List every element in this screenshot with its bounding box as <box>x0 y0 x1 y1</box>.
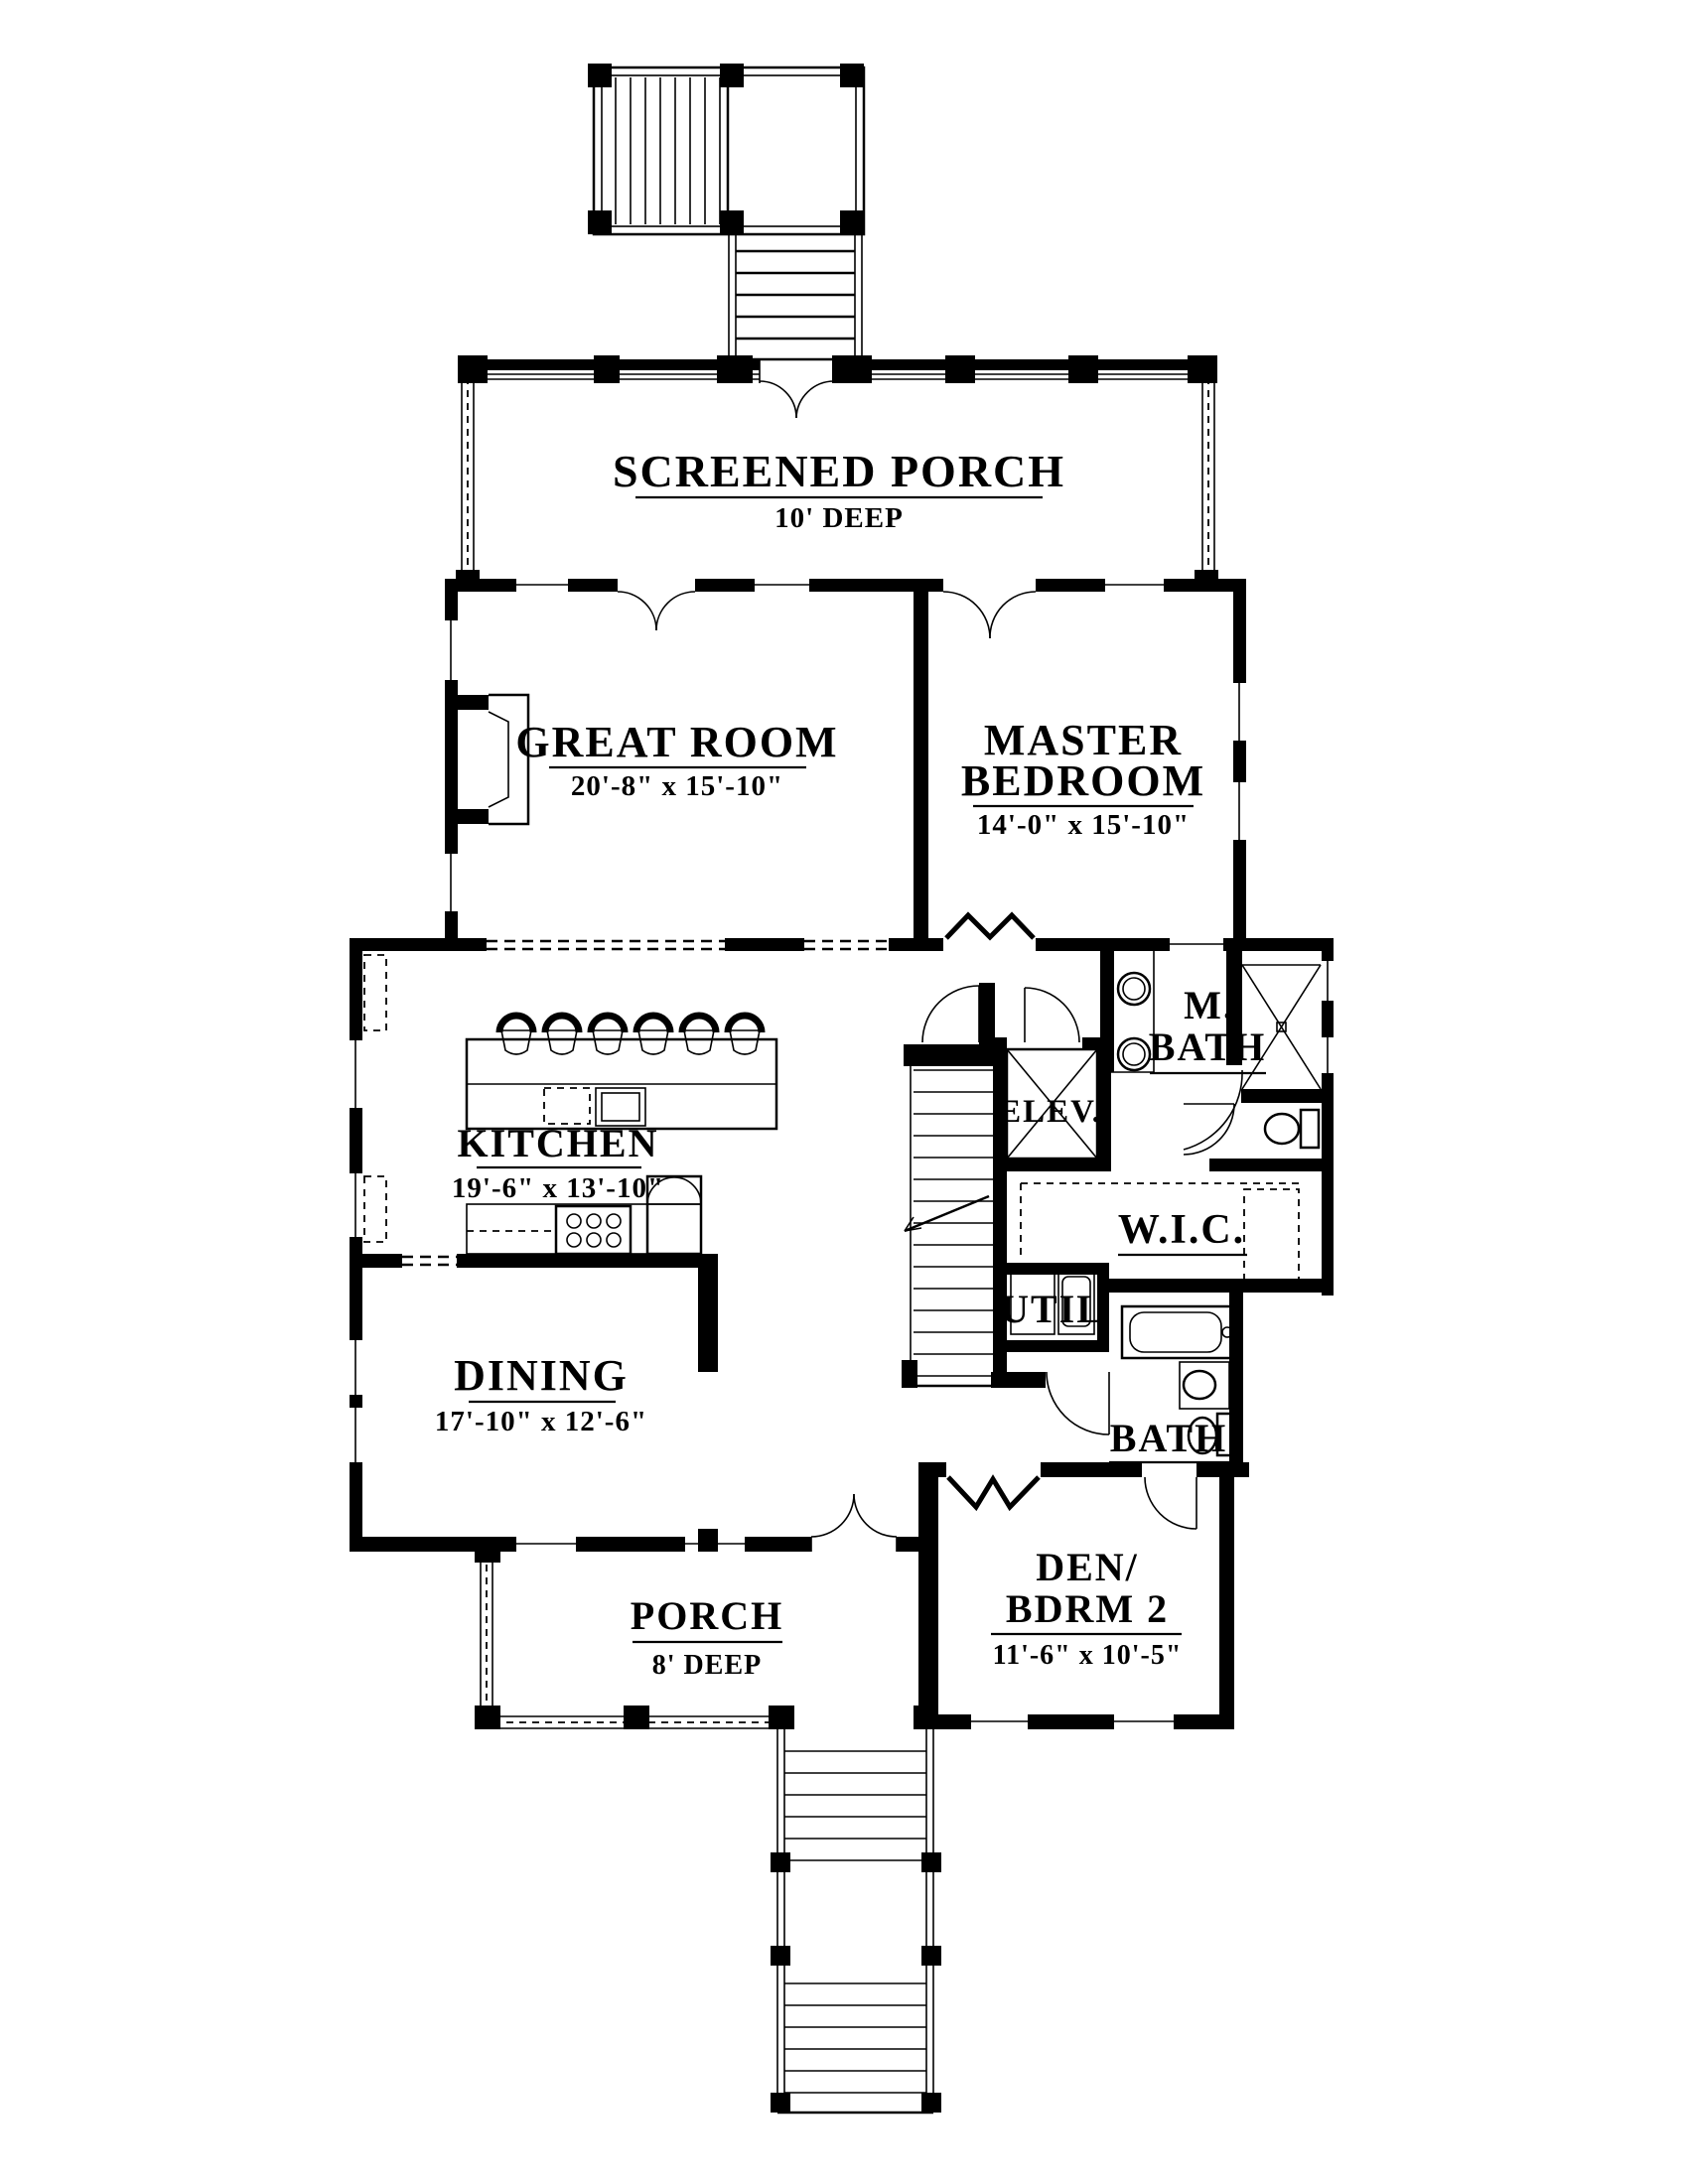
great-room-french-door <box>618 592 695 630</box>
room-label-bath: BATH <box>1109 1416 1231 1462</box>
kitchen-dims: 19'-6" x 13'-10" <box>452 1172 664 1204</box>
den-dims: 11'-6" x 10'-5" <box>993 1640 1183 1671</box>
deck-post <box>840 64 864 87</box>
cabinet-dashed <box>364 955 386 1030</box>
porch-dims: 8' DEEP <box>652 1650 762 1681</box>
dining-dims: 17'-10" x 12'-6" <box>435 1406 647 1437</box>
room-label-wic: W.I.C. <box>1118 1207 1247 1255</box>
dining-name: DINING <box>454 1351 629 1400</box>
great-room: GREAT ROOM 20'-8" x 15'-10" <box>445 592 839 824</box>
dishwasher <box>544 1088 590 1124</box>
den-swing-door <box>1145 1477 1196 1529</box>
great-room-name: GREAT ROOM <box>515 718 838 766</box>
den-name-2: BDRM 2 <box>1006 1586 1169 1631</box>
elevator-name: ELEV. <box>999 1094 1102 1130</box>
porch-post <box>914 1706 938 1729</box>
deck-post <box>588 64 612 87</box>
deck-post <box>588 210 612 234</box>
screened-porch: SCREENED PORCH 10' DEEP <box>456 355 1218 592</box>
upper-deck <box>588 64 864 234</box>
porch-name: PORCH <box>631 1593 783 1638</box>
den-bedroom2: DEN/ BDRM 2 11'-6" x 10'-5" <box>918 1462 1249 1729</box>
porch-french-door <box>760 359 834 418</box>
kitchen-name: KITCHEN <box>458 1121 659 1165</box>
porch-post <box>475 1706 500 1729</box>
stair-post <box>771 2093 790 2113</box>
great-room-dims: 20'-8" x 15'-10" <box>571 770 783 802</box>
porch-post <box>832 355 872 383</box>
stool-icon <box>591 1016 625 1054</box>
front-door <box>811 1494 897 1552</box>
wic-name: W.I.C. <box>1118 1207 1245 1253</box>
sink-icon <box>1180 1362 1229 1409</box>
master-bedroom-name-2: BEDROOM <box>961 756 1205 805</box>
stool-icon <box>682 1016 716 1054</box>
sink-icon <box>1118 973 1150 1070</box>
master-bath-name-1: M. <box>1184 983 1235 1027</box>
stool-icon <box>545 1016 579 1054</box>
stair-post <box>921 1852 941 1872</box>
kitchen: KITCHEN 19'-6" x 13'-10" <box>364 955 776 1254</box>
room-label-dining: DINING 17'-10" x 12'-6" <box>435 1351 647 1437</box>
room-label-master-bath: M. BATH <box>1149 983 1266 1073</box>
master-bedroom: MASTER BEDROOM 14'-0" x 15'-10" <box>943 592 1205 938</box>
hall-door <box>922 986 979 1042</box>
deck-post <box>840 210 864 234</box>
dining-room: DINING 17'-10" x 12'-6" <box>435 1351 647 1437</box>
porch-post <box>1068 355 1098 383</box>
floor-plan: SCREENED PORCH 10' DEEP <box>0 0 1688 2184</box>
cabinet-dashed <box>364 1176 386 1242</box>
elevator-door <box>1025 988 1079 1042</box>
master-bath-name-2: BATH <box>1149 1024 1266 1069</box>
front-porch: PORCH 8' DEEP <box>475 1549 938 1729</box>
stair-post <box>771 1946 790 1966</box>
room-label-kitchen: KITCHEN 19'-6" x 13'-10" <box>452 1121 664 1204</box>
bath-room: BATH <box>1109 1293 1243 1477</box>
screened-porch-name: SCREENED PORCH <box>613 446 1065 496</box>
deck-post <box>720 210 744 234</box>
stair-post <box>771 1852 790 1872</box>
stool-icon <box>728 1016 762 1054</box>
room-label-porch: PORCH 8' DEEP <box>631 1593 783 1681</box>
master-french-door <box>943 592 1036 638</box>
bathtub-icon <box>1122 1306 1237 1358</box>
porch-post <box>945 355 975 383</box>
stool-icon <box>499 1016 533 1054</box>
utility-name: UTIL <box>1000 1287 1105 1331</box>
stair-post <box>921 1946 941 1966</box>
stair-post <box>921 2093 941 2113</box>
master-bedroom-dims: 14'-0" x 15'-10" <box>977 809 1190 841</box>
room-label-master-bedroom: MASTER BEDROOM 14'-0" x 15'-10" <box>961 716 1205 841</box>
porch-post <box>717 355 753 383</box>
room-label-screened-porch: SCREENED PORCH 10' DEEP <box>613 446 1065 534</box>
toilet-icon <box>1265 1110 1319 1148</box>
porch-post <box>624 1706 649 1729</box>
stair-newel <box>902 1360 917 1388</box>
deck-post <box>720 64 744 87</box>
front-stairs <box>771 1729 941 2113</box>
floor-plan-page: SCREENED PORCH 10' DEEP <box>0 0 1688 2184</box>
room-label-den: DEN/ BDRM 2 11'-6" x 10'-5" <box>991 1545 1182 1671</box>
deck-stairs <box>729 234 862 363</box>
den-name-1: DEN/ <box>1036 1545 1139 1589</box>
stool-icon <box>636 1016 670 1054</box>
utility-room: UTIL <box>1000 1263 1109 1352</box>
porch-post <box>594 355 620 383</box>
master-bifold-door <box>946 915 1034 938</box>
room-label-great-room: GREAT ROOM 20'-8" x 15'-10" <box>515 718 838 802</box>
porch-post <box>769 1706 794 1729</box>
screened-porch-dims: 10' DEEP <box>774 502 904 534</box>
kitchen-island <box>467 1039 776 1129</box>
bath-door <box>1047 1372 1109 1434</box>
bar-stools <box>499 1016 762 1054</box>
bath-name: BATH <box>1110 1416 1227 1460</box>
elevator: ELEV. <box>922 983 1111 1171</box>
den-bifold-door <box>948 1477 1039 1507</box>
